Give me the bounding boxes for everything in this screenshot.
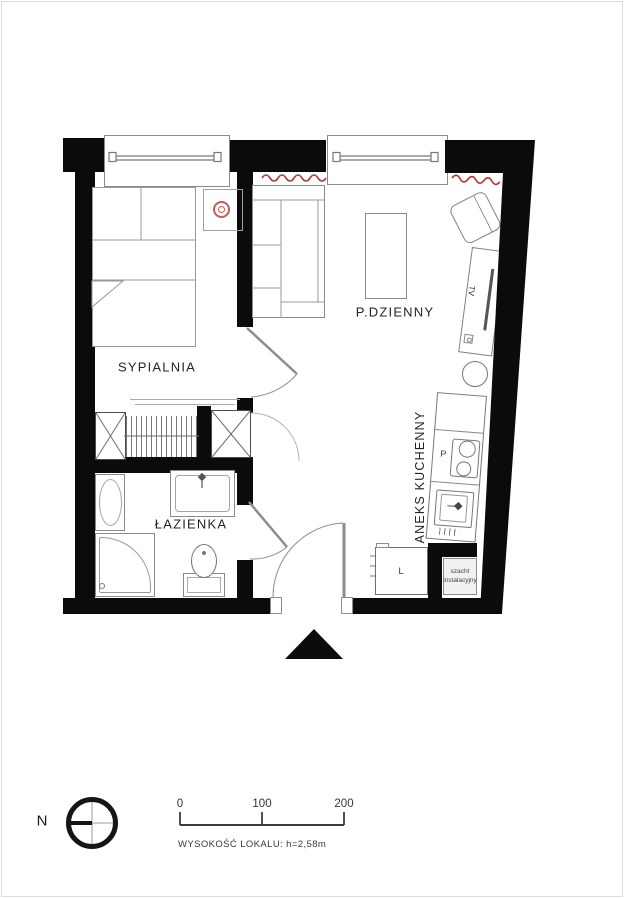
tv-label: TV (466, 285, 476, 296)
sofa (252, 185, 325, 318)
round-side-table (462, 361, 488, 387)
nightstand (203, 189, 243, 231)
wall-shaft-left (428, 543, 442, 598)
room-label-bedroom: SYPIALNIA (118, 360, 196, 375)
washer-door (99, 479, 122, 526)
fridge-handle (376, 543, 389, 548)
sink-basin (175, 475, 230, 512)
height-note: WYSOKOŚĆ LOKALU: h=2,58m (178, 839, 326, 850)
wall-bottom-right (352, 598, 502, 614)
room-label-kitchenette: ANEKS KUCHENNY (413, 411, 427, 544)
toilet-tank-inner (187, 577, 221, 593)
wardrobe-cabinet-left (95, 412, 126, 460)
kitchen-sink-basin (439, 494, 468, 523)
compass-icon (66, 797, 118, 849)
bed (92, 187, 196, 347)
shaft-label-line2: instalacyjny (443, 577, 477, 585)
room-label-bathroom: ŁAZIENKA (155, 517, 227, 532)
entrance-jamb-right (341, 597, 353, 614)
wardrobe-track-line2 (135, 404, 235, 405)
tv-cabinet-knob (463, 334, 473, 344)
wall-top-left-corner (63, 138, 108, 172)
wall-top-middle-pier (223, 140, 326, 172)
window-living (327, 135, 448, 185)
wall-bathroom-right-lower (237, 560, 253, 598)
scale-tick-100: 100 (252, 798, 271, 810)
wardrobe-hanging-rail (126, 416, 197, 457)
washing-machine (95, 474, 125, 531)
counter-divider (435, 429, 483, 434)
bathroom-sink (170, 470, 235, 517)
shaft-label-line1: szacht (451, 568, 470, 576)
toilet-bowl (191, 544, 217, 578)
heater-symbol-inner-icon (218, 206, 225, 213)
hob-label: P (440, 449, 447, 459)
shower (95, 533, 155, 597)
shower-tray (99, 537, 151, 593)
entrance-jamb-left (270, 597, 282, 614)
window-bedroom (104, 135, 230, 187)
north-label: N (37, 813, 48, 830)
wardrobe-track-line (130, 399, 240, 400)
installation-shaft: szacht instalacyjny (443, 558, 477, 595)
counter-divider2 (431, 481, 479, 486)
wall-bathroom-right-upper (237, 462, 253, 505)
tv-screen (483, 269, 494, 331)
wall-wardrobe-bar (197, 406, 211, 462)
room-label-living: P.DZIENNY (356, 305, 434, 320)
dish-rack-ticks (439, 528, 459, 537)
fridge-label: L (398, 566, 403, 576)
wardrobe-cabinet-right (211, 410, 251, 458)
floor-plan-canvas: TV P szacht instalacyjny (0, 0, 624, 898)
kitchen-sink (434, 489, 475, 528)
scale-tick-200: 200 (334, 798, 353, 810)
wall-bottom-left (63, 598, 271, 614)
table (365, 213, 407, 299)
scale-tick-0: 0 (177, 798, 183, 810)
